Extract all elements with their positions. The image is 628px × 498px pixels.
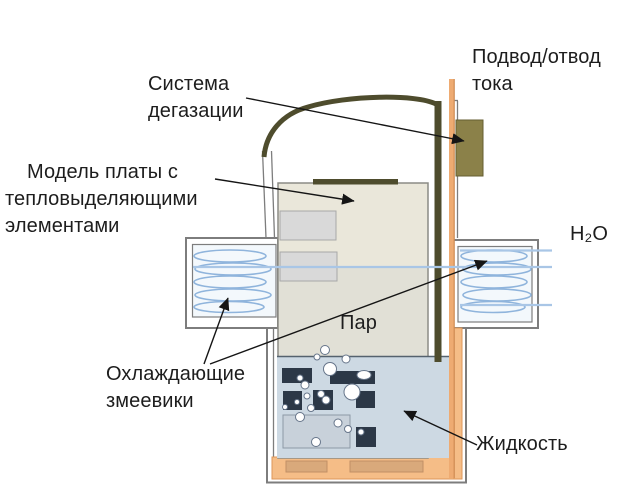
label-board-model-line1: Модель платы с [27,159,198,186]
label-degassing-line2: дегазации [148,98,244,125]
label-board-model-line2: тепловыделяющими [5,186,198,213]
label-degassing-line1: Система [148,71,244,98]
label-coils-line2: змеевики [106,388,245,415]
board-top-bar [313,179,398,185]
label-current-line1: Подвод/отвод [472,44,601,71]
label-coils-line1: Охлаждающие [106,361,245,388]
label-water: H₂O [570,221,608,248]
label-current-supply: Подвод/отвод тока [472,44,601,98]
liquid-pool [277,346,453,459]
label-vapor: Пар [340,310,377,337]
label-degassing-system: Система дегазации [148,71,244,125]
label-liquid: Жидкость [476,431,568,458]
left-coil-arm [186,238,278,328]
label-cooling-coils: Охлаждающие змеевики [106,361,245,415]
degassing-cooling-diagram: Система дегазации Модель платы с тепловы… [0,0,628,498]
label-board-model-line3: элементами [5,213,198,240]
label-current-line2: тока [472,71,601,98]
right-coil-arm [452,240,538,328]
label-board-model: Модель платы с тепловыделяющими элемента… [5,159,198,240]
current-connector-block [456,120,483,176]
